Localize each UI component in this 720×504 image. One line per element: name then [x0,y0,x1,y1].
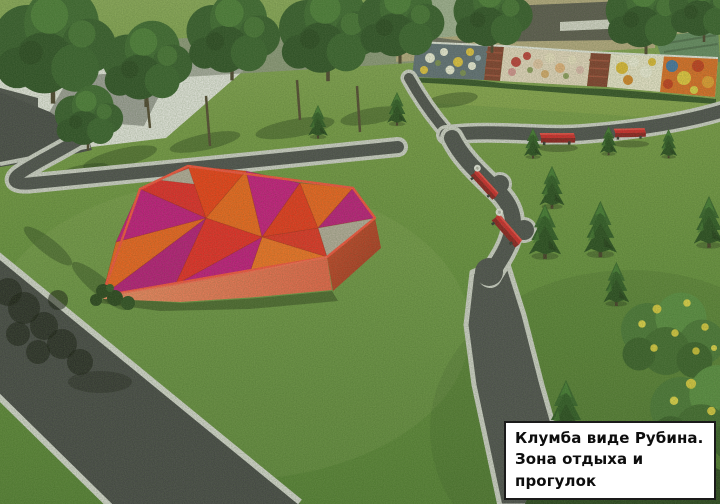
render-viewport: Клумба виде Рубина. Зона отдыха и прогул… [0,0,720,504]
caption-box: Клумба виде Рубина. Зона отдыха и прогул… [504,421,716,500]
caption-line-2: Зона отдыха и прогулок [515,449,705,492]
caption-line-1: Клумба виде Рубина. [515,428,705,449]
